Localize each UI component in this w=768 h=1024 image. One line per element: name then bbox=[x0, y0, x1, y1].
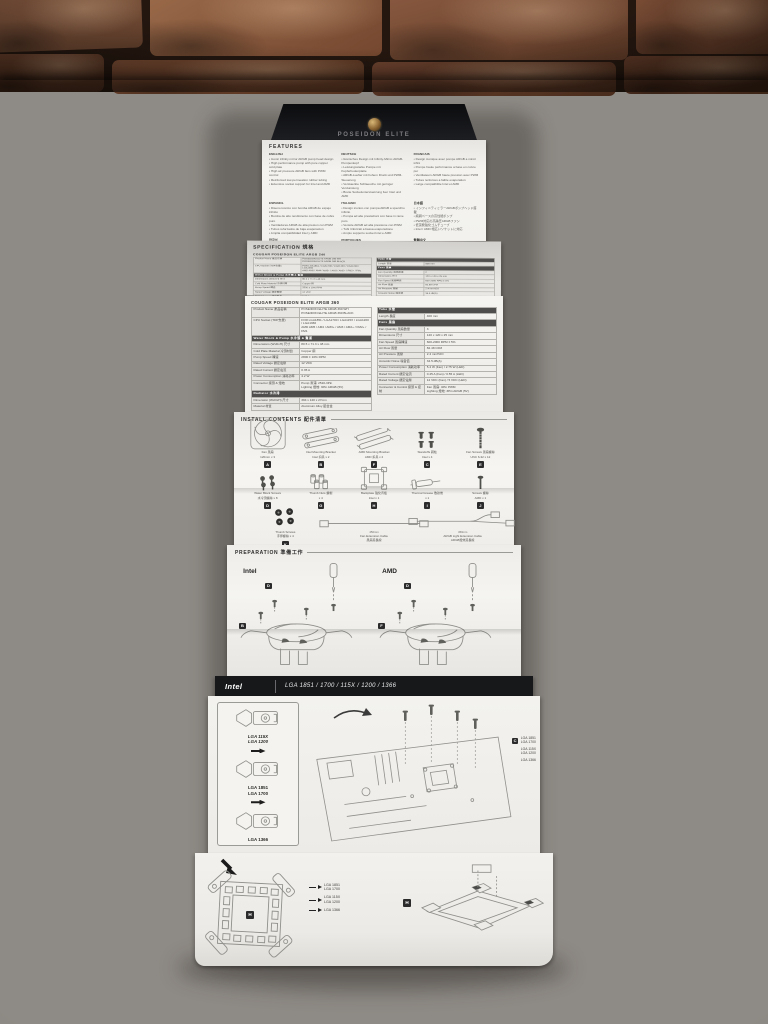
spec-table: Product Name 產品名稱POSEIDON ELITE ARGB 360… bbox=[251, 307, 372, 411]
spec-value: FOR LGA1851 / LGA1700 / LGA115X / LGA120… bbox=[299, 317, 371, 335]
item-badge: B bbox=[318, 461, 325, 468]
feature-bullet: • Ampio supporto socket Intel e AMD bbox=[341, 231, 406, 235]
next-step-arrow-icon bbox=[251, 800, 266, 805]
socket-names: LGA 1851LGA 1700 bbox=[324, 883, 340, 892]
feature-language-label: ITALIANO bbox=[341, 201, 406, 205]
spec-row: Fan Speed 風扇轉速600-2000 RPM ± 5% bbox=[376, 278, 494, 283]
motherboard-sketch bbox=[304, 702, 528, 848]
spec-label: Length 長度 bbox=[377, 261, 424, 265]
bracket-glyph bbox=[233, 757, 283, 781]
spec-table: Tube 水管Length 長度400 mmFans 風扇Fan Quantit… bbox=[377, 307, 498, 396]
feature-bullet: • Ikonisches Design mit Infinity-Mirror-… bbox=[341, 157, 406, 165]
feature-bullet: • Intel / AMD 幅広いソケットに対応 bbox=[414, 227, 479, 231]
spec-value: Pump 幫浦: 2510-3PinLighting 燈效: 3Pin ARGB… bbox=[299, 381, 371, 391]
thumbscrews-icon bbox=[272, 512, 298, 530]
spec-label: Material 材質 bbox=[252, 404, 300, 410]
spec-360-panel: COUGAR POSEIDON ELITE ARGB 360Product Na… bbox=[245, 296, 503, 412]
brick bbox=[636, 0, 768, 54]
spec-label: Dimensions 尺寸 bbox=[376, 274, 423, 278]
feature-block: 日本語• インフィニティミラーARGBポンプヘッド搭載• 純銅ベースの高性能ポン… bbox=[414, 201, 479, 235]
install-item-sublabel: AMD x 1 bbox=[475, 497, 487, 501]
socket-name: LGA 1366 bbox=[521, 758, 536, 762]
spec-value: Fan 風扇: 4Pin PWMLighting 燈效: 3Pin ARGB (… bbox=[425, 384, 497, 394]
feature-block: ESPANOL• Diseno iconico con bomba ARGB d… bbox=[269, 201, 334, 235]
spec-table: Tube 水管Length 長度400 mmFans 風扇Fan Quantit… bbox=[376, 257, 495, 297]
backplate-3d-view: H bbox=[407, 863, 547, 953]
bracket-socket-label: LGA 1366 bbox=[248, 837, 268, 842]
install-item-sublabel: Intel x 1 bbox=[369, 497, 380, 501]
feature-bullet: • Diseno iconico con bomba ARGB de espej… bbox=[269, 206, 334, 214]
brick-wall bbox=[0, 0, 768, 92]
item-badge: G bbox=[318, 502, 325, 509]
install-item-h: Backplate 強化背板Intel x 1H bbox=[347, 471, 400, 509]
next-step-arrow-icon bbox=[251, 748, 266, 753]
item-badge: A bbox=[264, 461, 271, 468]
install-item-sublabel: 風扇延長線 bbox=[367, 539, 382, 543]
spec-label: Product Name 產品名稱 bbox=[252, 307, 300, 317]
item-badge: C bbox=[424, 461, 431, 468]
cable-length-label: 450mm bbox=[369, 530, 378, 534]
intel-socket-bar: Intel LGA 1851 / 1700 / 115X / 1200 / 13… bbox=[215, 676, 533, 696]
install-item-sublabel: 手擰螺絲 x 4 bbox=[277, 535, 294, 539]
bracket2-icon bbox=[353, 426, 395, 450]
feature-block: ENGLISH• Iconic infinity mirror ARGB pum… bbox=[269, 152, 334, 198]
install-item-sublabel: x 1 bbox=[425, 497, 429, 501]
spec-row: Air Pressure 風壓2.4 mmH2O bbox=[376, 287, 494, 292]
spec-table-title: COUGAR POSEIDON ELITE ARGB 240 bbox=[253, 252, 495, 256]
features-panel: FEATURES ENGLISH• Iconic infinity mirror… bbox=[262, 140, 486, 241]
feature-bullet: • Bomba de alto rendimiento con base de … bbox=[269, 214, 334, 222]
standoff-callout: C LGA 1851LGA 1700LGA 115XLGA 1200LGA 13… bbox=[512, 736, 536, 762]
install-item-sublabel: Intel 扣具 x 2 bbox=[312, 456, 329, 460]
bracket-socket-label: LGA 115XLGA 1200 bbox=[248, 734, 268, 745]
arrow-line bbox=[309, 887, 316, 888]
badge-h: H bbox=[403, 899, 411, 907]
feature-block: ITALIANO• Design iconico con pompa ARGB … bbox=[341, 201, 406, 235]
platform-label: Intel bbox=[243, 568, 256, 575]
spec-value: POSEIDON ELITE ARGB 360 WHPOSEIDON ELITE… bbox=[299, 307, 371, 317]
feature-bullet: • Pompe haute performance a base en cuiv… bbox=[414, 165, 479, 173]
backplate-socket-entry: LGA 1851LGA 1700 bbox=[309, 883, 340, 892]
spec-label: Connector & Control 接頭 & 控制 bbox=[377, 384, 425, 394]
spec-row: Product Name 產品名稱POSEIDON ELITE ARGB 360… bbox=[252, 307, 372, 317]
arrow-head-icon bbox=[318, 898, 322, 902]
feature-bullet: • ARGB-Luefter mit hohem Druck und PWM-S… bbox=[341, 173, 406, 181]
item-badge: I bbox=[424, 502, 431, 509]
install-item-k: Thumb Screws手擰螺絲 x 4K bbox=[241, 512, 330, 548]
install-item-g: Thumb Nuts 螺帽x 4G bbox=[294, 471, 347, 509]
feature-bullet: • High air pressure ARGB fans with PWM c… bbox=[269, 169, 334, 177]
spec-row: CPU Socket (TDP支援)FOR LGA1851 / LGA1700 … bbox=[253, 263, 371, 273]
fan-icon bbox=[250, 426, 286, 450]
preparation-diagrams: IntelDB AMDDF bbox=[235, 559, 513, 671]
spec-value: 80.5 x 71.3 x 48 mm bbox=[301, 277, 372, 281]
feature-language-label: FRANCAIS bbox=[414, 152, 479, 156]
socket-name: LGA 1700 bbox=[521, 740, 536, 744]
spec-row: Material 材質Aluminum Alloy 鋁合金 bbox=[252, 404, 372, 410]
feature-block: FRANCAIS• Design iconique avec pompe ARG… bbox=[414, 152, 479, 198]
arrow-head-icon bbox=[318, 908, 322, 912]
feature-language-label: 日本語 bbox=[414, 201, 479, 205]
socket-names: LGA 115XLGA 1200 bbox=[324, 895, 340, 904]
spec-label: Fan Quantity 風扇數量 bbox=[376, 270, 423, 274]
spec-value: Copper 銅 bbox=[301, 281, 372, 285]
spec-table: Product Name 產品名稱POSEIDON ELITE ARGB 240… bbox=[253, 256, 372, 296]
install-row: Water Block Screws水冷頭螺絲 x 8DThumb Nuts 螺… bbox=[241, 471, 507, 509]
intel-label: Intel bbox=[225, 682, 275, 691]
feature-language-label: ENGLISH bbox=[269, 152, 334, 156]
bracket-orientation-box: LGA 115XLGA 1200 LGA 1851LGA 1700 LGA 13… bbox=[217, 702, 299, 846]
item-badge: E bbox=[477, 461, 484, 468]
prep-diagram-amd: AMDDF bbox=[378, 559, 509, 671]
backplate-icon bbox=[360, 471, 388, 491]
spec-value: 400 mm bbox=[424, 261, 495, 265]
spec-value: Aluminum Alloy 鋁合金 bbox=[299, 404, 371, 410]
spec-row: Dimensions 尺寸120 x 120 x 25 mm bbox=[376, 274, 494, 279]
nuts-icon bbox=[308, 471, 334, 491]
spec-label: Rated Voltage 額定電壓 bbox=[253, 290, 300, 294]
spec-label: CPU Socket (TDP支援) bbox=[253, 263, 300, 272]
spec-label: Fan Speed 風扇轉速 bbox=[376, 278, 423, 282]
arrow-line bbox=[309, 900, 316, 901]
thermal-icon bbox=[410, 471, 444, 491]
install-item-sublabel: 水冷頭螺絲 x 8 bbox=[258, 497, 278, 501]
spec-value: 82.48 CFM bbox=[424, 283, 495, 287]
backplate-socket-entry: LGA 115XLGA 1200 bbox=[309, 895, 340, 904]
bracket-glyph bbox=[233, 706, 283, 730]
feature-bullet: • Design iconique avec pompe ARGB a miro… bbox=[414, 157, 479, 165]
backplate-top-view: H bbox=[201, 865, 301, 963]
install-item-i: Thermal Grease 散熱膏x 1I bbox=[401, 471, 454, 509]
badge-b: B bbox=[239, 623, 246, 630]
install-row: Fan 風扇120mm x 3AIntel Mounting BracketIn… bbox=[241, 426, 507, 468]
feature-bullet: • Extensive socket support for Intel and… bbox=[269, 182, 334, 186]
motherboard-diagram: C LGA 1851LGA 1700LGA 115XLGA 1200LGA 13… bbox=[304, 702, 536, 849]
feature-bullet: • Breite Sockelunterstuetzung fuer Intel… bbox=[341, 190, 406, 198]
spec-row: Connector 接頭 & 燈效Pump 幫浦: 2510-3PinLight… bbox=[252, 381, 372, 391]
feature-language-label: ESPANOL bbox=[269, 201, 334, 205]
socket-name: LGA 1200 bbox=[521, 751, 536, 755]
install-item-e: Fan Screws 風扇螺絲UNC 6-32 x 12E bbox=[454, 426, 507, 468]
spec-table-240: COUGAR POSEIDON ELITE ARGB 240Product Na… bbox=[253, 252, 495, 296]
spec-columns: Product Name 產品名稱POSEIDON ELITE ARGB 360… bbox=[251, 307, 497, 411]
feature-language-label: DEUTSCH bbox=[341, 152, 406, 156]
cable-length-label: 450mm bbox=[458, 530, 467, 534]
badge-d: D bbox=[265, 583, 272, 590]
feature-bullet: • High performance pump with pure copper… bbox=[269, 161, 334, 169]
install-item-d: Water Block Screws水冷頭螺絲 x 8D bbox=[241, 471, 294, 509]
spec-value: 120 x 120 x 25 mm bbox=[424, 274, 495, 278]
spec-label: CPU Socket (TDP支援) bbox=[252, 317, 300, 335]
feature-bullet: • Pompa ad alte prestazioni con base in … bbox=[341, 214, 406, 222]
socket-list-label: LGA 1851 / 1700 / 115X / 1200 / 1366 bbox=[285, 683, 396, 689]
arrow-head-icon bbox=[318, 885, 322, 889]
spec-table-title: COUGAR POSEIDON ELITE ARGB 360 bbox=[251, 300, 497, 305]
platform-label: AMD bbox=[382, 568, 397, 575]
screwsmall-icon bbox=[477, 471, 484, 491]
specification-heading: SPECIFICATION 規格 bbox=[253, 244, 495, 252]
specification-panel: SPECIFICATION 規格 COUGAR POSEIDON ELITE A… bbox=[247, 241, 501, 297]
standoff-socket-list: LGA 1851LGA 1700LGA 115XLGA 1200LGA 1366 bbox=[521, 736, 536, 762]
spec-row: CPU Socket (TDP支援)FOR LGA1851 / LGA1700 … bbox=[252, 317, 372, 335]
feature-bullet: • Leistungsstarke Pumpe mit Kupferbodenp… bbox=[341, 165, 406, 173]
spec-label: Pump Speed 轉速 bbox=[253, 285, 300, 289]
features-heading: FEATURES bbox=[269, 144, 479, 150]
item-badge: H bbox=[371, 502, 378, 509]
standoffs-icon bbox=[416, 426, 438, 450]
item-badge: D bbox=[264, 502, 271, 509]
spec-value: 2800 ± 10% RPM bbox=[301, 286, 372, 290]
spec-label: Cold Plate Material 冷頭材質 bbox=[253, 281, 300, 285]
spec-label: Connector 接頭 & 燈效 bbox=[252, 381, 300, 391]
bracket-socket-label: LGA 1851LGA 1700 bbox=[248, 785, 268, 796]
install-item-c: Standoffs 銅柱Intel x 4C bbox=[401, 426, 454, 468]
photo-scene: POSEIDON ELITE FEATURES ENGLISH• Iconic … bbox=[0, 0, 768, 1024]
badge-d: D bbox=[404, 583, 411, 590]
spec-table-360: COUGAR POSEIDON ELITE ARGB 360Product Na… bbox=[251, 300, 497, 416]
backplate-socket-list: LGA 1851LGA 1700LGA 115XLGA 1200LGA 1366 bbox=[309, 883, 340, 912]
separator bbox=[275, 680, 276, 693]
install-item-sublabel: x 4 bbox=[319, 497, 323, 501]
brick bbox=[390, 0, 628, 60]
badge-f: F bbox=[378, 623, 385, 630]
feature-bullet: • Large compatibilite Intel et AMD bbox=[414, 182, 479, 186]
cableargb-icon bbox=[407, 512, 519, 530]
arrow-line bbox=[309, 910, 316, 911]
install-item-sublabel: UNC 6-32 x 12 bbox=[470, 456, 490, 460]
spec-row: Connector & Control 接頭 & 控制Fan 風扇: 4Pin … bbox=[377, 384, 497, 394]
item-badge: J bbox=[477, 502, 484, 509]
install-items: Fan 風扇120mm x 3AIntel Mounting BracketIn… bbox=[241, 426, 507, 551]
feature-bullet: • Ventilateurs ARGB haute pression avec … bbox=[414, 173, 479, 177]
spec-label: Dimensions (WxDxH) 尺寸 bbox=[253, 277, 300, 281]
bracket-glyph bbox=[233, 809, 283, 833]
spec-value: FOR LGA1851 / LGA1700 / LGA115X / LGA120… bbox=[301, 264, 372, 274]
install-item-sublabel: AMD 扣具 x 2 bbox=[365, 456, 383, 460]
install-item-b: Intel Mounting BracketIntel 扣具 x 2B bbox=[294, 426, 347, 468]
spec-value: POSEIDON ELITE ARGB 240 WHPOSEIDON ELITE… bbox=[301, 257, 372, 264]
fanscrew-icon bbox=[476, 426, 485, 450]
manual-cover-panel: POSEIDON ELITE bbox=[271, 104, 477, 140]
preparation-panel: PREPARATION 準備工作 IntelDB AMDDF bbox=[227, 545, 521, 676]
install-contents-panel: INSTALL CONTENTS 配件清單 Fan 風扇120mm x 3AIn… bbox=[234, 412, 514, 545]
cougar-logo-icon bbox=[368, 118, 381, 131]
socket-names: LGA 1366 bbox=[324, 908, 340, 912]
install-item-j: Screws 螺絲AMD x 1J bbox=[454, 471, 507, 509]
cover-title: POSEIDON ELITE bbox=[338, 132, 411, 138]
prep-diagram-intel: IntelDB bbox=[239, 559, 370, 671]
backplate-panel: H LGA 1851LGA 1700LGA 115XLGA 1200LGA 13… bbox=[195, 853, 553, 966]
backplate-socket-entry: LGA 1366 bbox=[309, 908, 340, 912]
spec-columns: Product Name 產品名稱POSEIDON ELITE ARGB 240… bbox=[253, 256, 495, 296]
feature-block: DEUTSCH• Ikonisches Design mit Infinity-… bbox=[341, 152, 406, 198]
install-item-f: AMD Mounting BracketAMD 扣具 x 2F bbox=[347, 426, 400, 468]
spec-row: Dimensions (WxDxH) 尺寸80.5 x 71.3 x 48 mm bbox=[253, 277, 371, 282]
intel-install-panel: LGA 115XLGA 1200 LGA 1851LGA 1700 LGA 13… bbox=[208, 696, 540, 853]
spec-label: Product Name 產品名稱 bbox=[253, 257, 300, 264]
blockscrews-icon bbox=[258, 471, 278, 491]
brick bbox=[0, 0, 143, 53]
feature-bullet: • Amplia compatibilidad Intel y AMD bbox=[269, 231, 334, 235]
install-item-sublabel: 120mm x 3 bbox=[260, 456, 275, 460]
spec-value: 34.5 dB(A) bbox=[424, 291, 495, 295]
preparation-heading: PREPARATION 準備工作 bbox=[235, 549, 513, 556]
feature-bullet: • Verstaerkte Schlaeuche mit geringer Ve… bbox=[341, 182, 406, 190]
install-item-sublabel: ARGB燈效延長線 bbox=[451, 539, 475, 543]
badge-h: H bbox=[246, 911, 254, 919]
spec-label: Air Pressure 風壓 bbox=[376, 287, 423, 291]
feature-bullet: • Design iconico con pompa ARGB a specch… bbox=[341, 206, 406, 214]
bracket-icon bbox=[300, 426, 342, 450]
badge-c: C bbox=[512, 738, 519, 745]
brick bbox=[150, 0, 382, 56]
spec-row: Product Name 產品名稱POSEIDON ELITE ARGB 240… bbox=[253, 257, 371, 264]
install-item-a: Fan 風扇120mm x 3A bbox=[241, 426, 294, 468]
spec-row: Pump Speed 轉速2800 ± 10% RPM bbox=[253, 285, 371, 290]
install-item-sublabel: Intel x 4 bbox=[422, 456, 433, 460]
